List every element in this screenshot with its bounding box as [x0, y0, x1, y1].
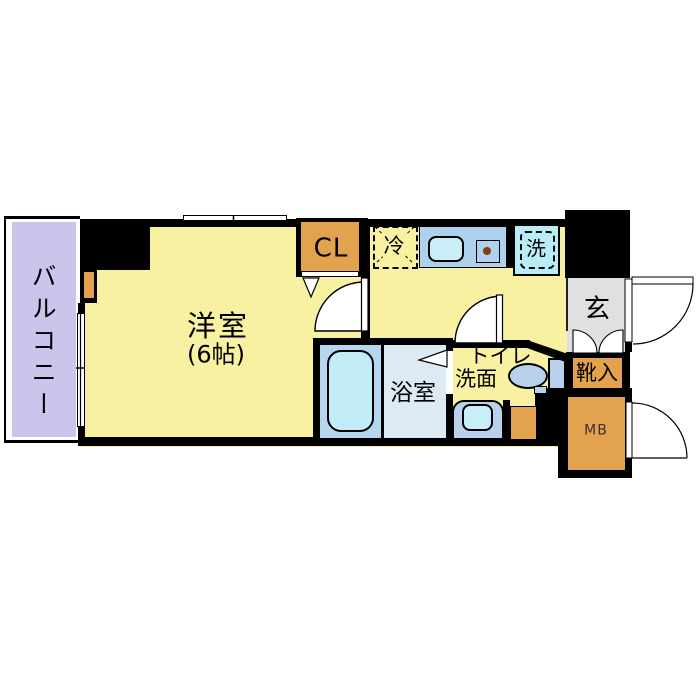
refrigerator-label: 冷 — [383, 235, 406, 257]
washer-label: 洗 — [525, 239, 547, 260]
diagonal-wall — [527, 340, 571, 364]
shoe-door-left-fan — [573, 330, 597, 353]
toilet-label: トイレ — [469, 345, 532, 367]
meter-box-label: MB — [584, 424, 608, 439]
meter-box-door-arc — [632, 403, 687, 458]
entrance-label: 玄 — [584, 296, 610, 323]
meter-box-doorway — [626, 402, 632, 458]
shoe-cabinet-label: 靴入 — [576, 362, 618, 384]
main-room-size-label: (6帖) — [187, 342, 245, 367]
room-door-swing — [315, 282, 364, 331]
washstand-label: 洗面 — [455, 368, 497, 390]
door-and-symbol-overlay — [0, 0, 700, 700]
closet-label: CL — [314, 235, 349, 262]
room-door-leaf — [362, 278, 369, 331]
bathroom-door-triangle — [419, 350, 447, 367]
front-door-leaf — [632, 277, 693, 284]
shoe-door-right-fan — [599, 330, 623, 353]
washroom-door-leaf — [497, 295, 503, 343]
front-door-arc — [633, 284, 693, 344]
main-room-label: 洋室 — [187, 311, 249, 341]
closet-door-triangle — [303, 278, 319, 297]
washroom-door-swing — [455, 296, 502, 343]
bathroom-label: 浴室 — [390, 381, 436, 405]
front-doorway — [625, 279, 632, 342]
balcony-label: バルコニー — [29, 263, 55, 423]
floor-plan: バルコニー 洋室 (6帖) CL 冷 洗 浴室 トイレ 洗面 玄 靴入 MB — [0, 0, 700, 700]
